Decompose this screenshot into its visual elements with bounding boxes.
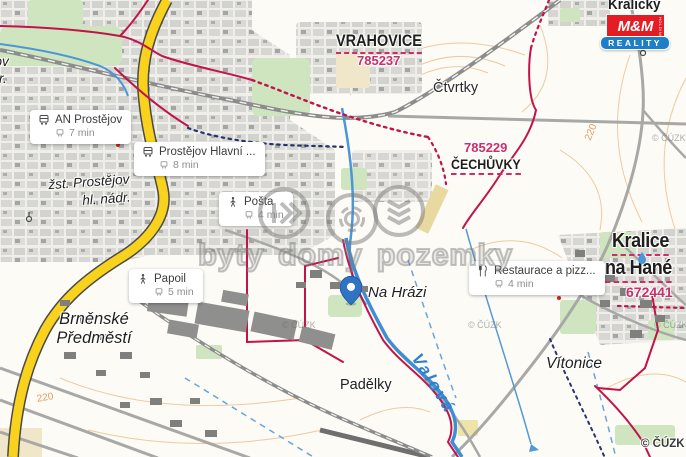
callout-papoil[interactable]: Papoil 5 min (129, 269, 203, 303)
label-edge-line1: ějov (0, 54, 9, 69)
cuzk-faint-mark: © ČÚZK (468, 320, 502, 330)
label-vitonice: Vítonice (546, 355, 602, 373)
label-edge-line2: ádr. (0, 71, 7, 86)
label-brnenske-line2: Předměstí (56, 329, 131, 347)
label-station-line2: hl. nádr. (82, 189, 131, 207)
mm-reality-logo: M&M HOLDING REALITY (600, 15, 672, 50)
walk-icon (137, 273, 149, 285)
label-kralice-code: 672441 (626, 284, 673, 300)
label-station: žst. Prostějov hl. nádr. (29, 171, 131, 213)
walk-icon (227, 196, 239, 208)
callout-time: 4 min (258, 209, 284, 221)
label-brnenske-predmesti: Brněnské Předměstí (44, 310, 144, 348)
label-na-hrazi: Na Hrázi (368, 284, 426, 301)
spring-icon (637, 252, 647, 264)
bus-small-icon (159, 160, 169, 170)
label-vrahovice-code: 785237 (357, 53, 400, 68)
cuzk-faint-mark: © ČÚZK (652, 133, 686, 143)
label-ctvrtky: Čtvrtky (433, 80, 478, 96)
label-brnenske-line1: Brněnské (59, 310, 129, 328)
label-edge-partial: ějov ádr. (0, 54, 9, 88)
label-vrahovice: VRAHOVICE (336, 31, 422, 54)
bus-small-icon (154, 287, 164, 297)
location-pin[interactable] (340, 276, 362, 306)
callout-title: AN Prostějov (55, 114, 122, 126)
bus-small-icon (494, 279, 504, 289)
bus-icon (38, 114, 50, 126)
bus-small-icon (244, 210, 254, 220)
callout-time: 4 min (508, 278, 534, 290)
label-cechuvky-code: 785229 (464, 140, 507, 155)
cuzk-faint-mark: © ČÚZK (654, 320, 686, 330)
callout-an-prostejov[interactable]: AN Prostějov 7 min (30, 110, 131, 144)
mm-logo-bottom: REALITY (600, 36, 670, 50)
watermark-text: byty domy pozemky (198, 237, 513, 273)
label-kralicky: Kralický (608, 0, 661, 13)
map-viewport[interactable]: VRAHOVICE 785237 Čtvrtky 785229 ČECHŮVKY… (0, 0, 686, 457)
bus-icon (142, 146, 154, 158)
mm-logo-reality: REALITY (608, 38, 662, 48)
cuzk-faint-mark: © ČÚZK (282, 320, 316, 330)
callout-time: 8 min (173, 159, 199, 171)
callout-prostejov-hlavni[interactable]: Prostějov Hlavní ... 8 min (134, 142, 265, 176)
callout-time: 5 min (168, 286, 194, 298)
callout-title: Pošta (244, 196, 273, 208)
label-cechuvky: ČECHŮVKY (451, 157, 521, 175)
callout-title: Papoil (154, 273, 186, 285)
callout-time: 7 min (69, 127, 95, 139)
cuzk-attribution: © ČÚZK (641, 438, 685, 450)
mm-logo-top: M&M HOLDING (607, 15, 664, 37)
label-padelky: Padělky (340, 377, 392, 393)
callout-title: Prostějov Hlavní ... (159, 146, 256, 158)
mm-logo-mm: M&M (618, 18, 654, 35)
bus-small-icon (55, 128, 65, 138)
callout-posta[interactable]: Pošta 4 min (219, 192, 293, 226)
